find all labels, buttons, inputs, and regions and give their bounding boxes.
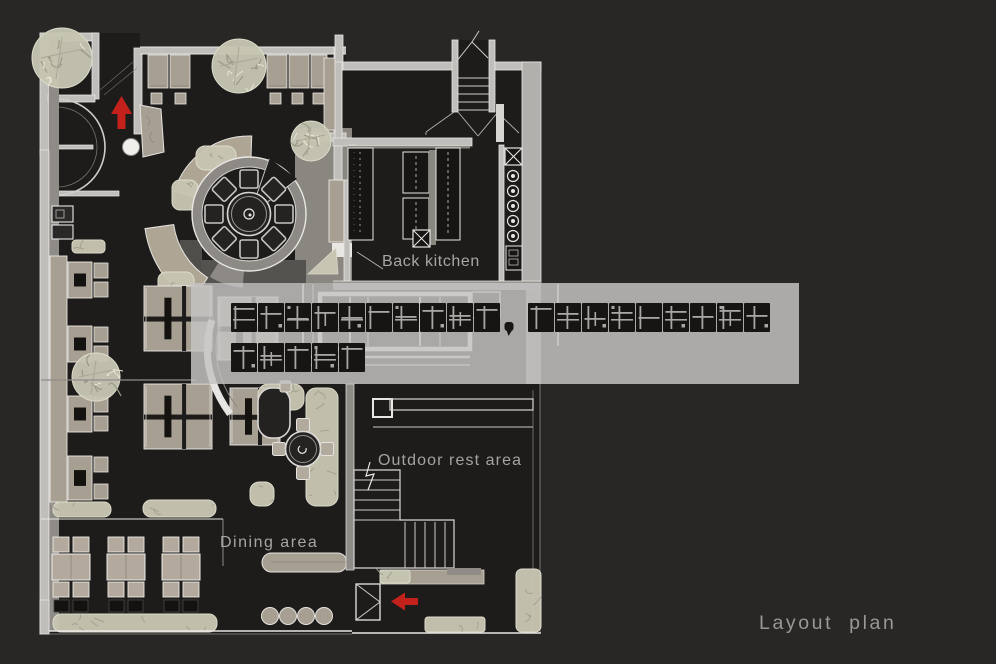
svg-text:Back kitchen: Back kitchen — [382, 253, 480, 270]
svg-text:Dining area: Dining area — [220, 534, 318, 551]
svg-text:Outdoor rest area: Outdoor rest area — [378, 452, 522, 469]
svg-text:Layout plan: Layout plan — [759, 612, 896, 634]
